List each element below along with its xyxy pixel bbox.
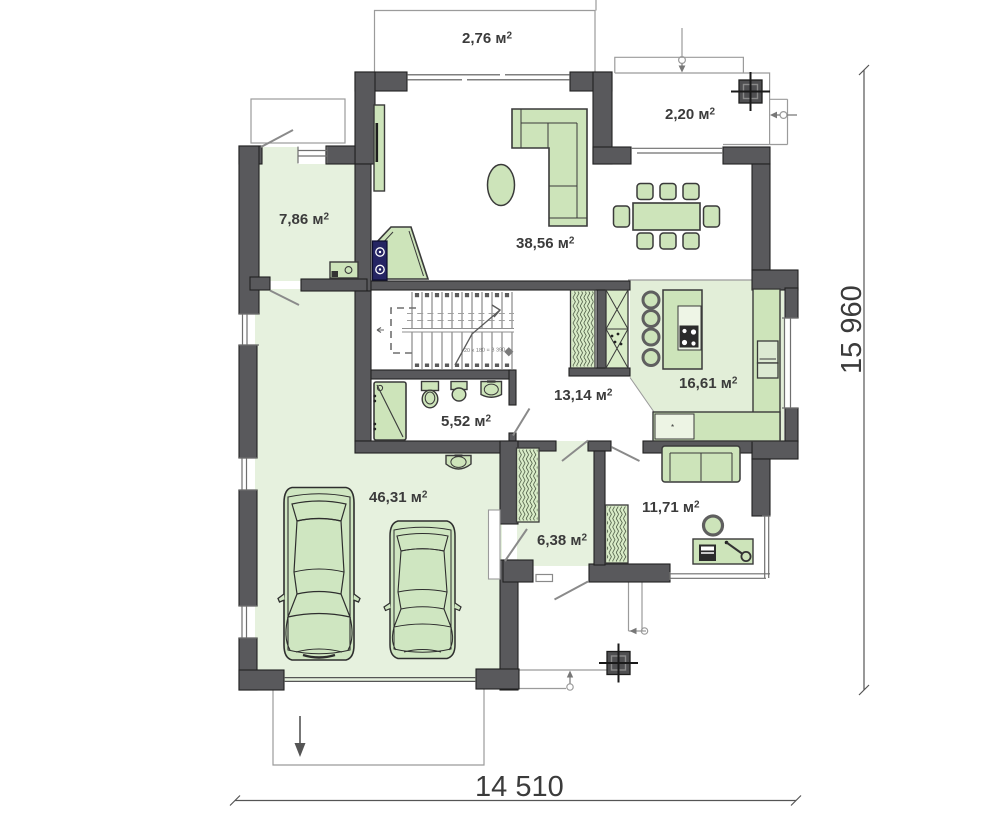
svg-text:16,61 м2: 16,61 м2 <box>679 375 738 392</box>
svg-text:*: * <box>671 423 674 432</box>
svg-text:13,14 м2: 13,14 м2 <box>554 387 613 404</box>
svg-text:15 960: 15 960 <box>836 285 868 374</box>
svg-text:14 510: 14 510 <box>475 771 564 803</box>
svg-text:7,86 м2: 7,86 м2 <box>279 211 329 228</box>
svg-text:2,20 м2: 2,20 м2 <box>665 106 715 123</box>
svg-text:11,71 м2: 11,71 м2 <box>642 499 700 516</box>
svg-text:46,31 м2: 46,31 м2 <box>369 489 428 506</box>
svg-text:20 x 180 = 3 390: 20 x 180 = 3 390 <box>464 347 505 354</box>
svg-text:38,56 м2: 38,56 м2 <box>516 235 575 252</box>
svg-text:5,52 м2: 5,52 м2 <box>441 413 491 430</box>
svg-text:2,76 м2: 2,76 м2 <box>462 30 512 47</box>
svg-text:6,38 м2: 6,38 м2 <box>537 532 587 549</box>
